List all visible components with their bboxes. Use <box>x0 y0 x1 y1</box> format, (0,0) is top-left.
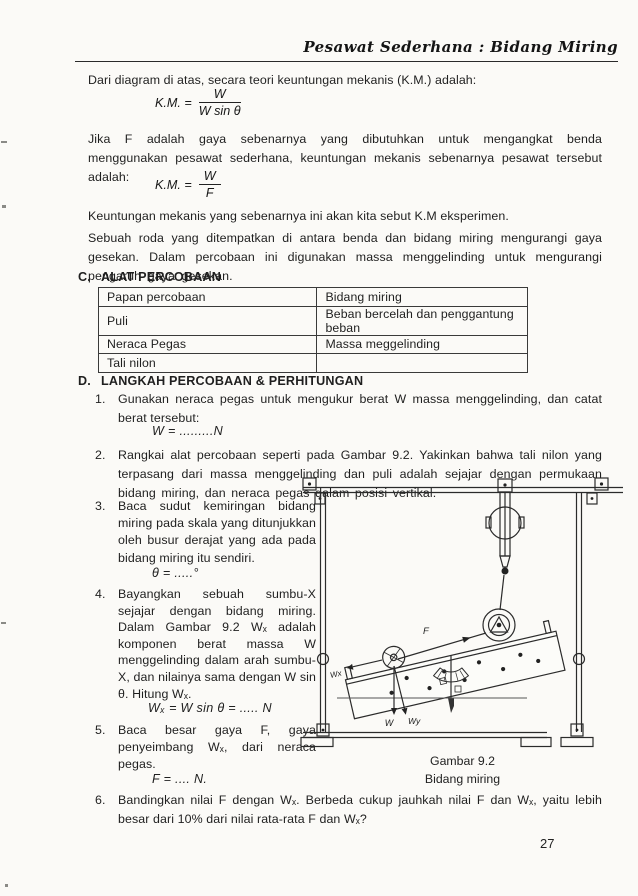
step-6: 6. Bandingkan nilai F dengan Wₓ. Berbeda… <box>95 791 602 829</box>
table-cell: Tali nilon <box>99 354 317 373</box>
section-d-label: D. <box>78 374 101 388</box>
header-rule <box>75 61 618 62</box>
table-cell <box>317 354 528 373</box>
apparatus-frame <box>301 478 623 747</box>
table-cell: Massa meggelinding <box>317 335 528 354</box>
page-number: 27 <box>540 836 554 851</box>
table-row: Tali nilon <box>99 354 528 373</box>
spring-balance <box>486 479 524 575</box>
formula-km-theory: K.M. = W W sin θ <box>155 87 241 118</box>
step-4: 4. Bayangkan sebuah sumbu-X sejajar deng… <box>95 586 316 702</box>
fraction-denominator: F <box>199 185 221 200</box>
scan-speck <box>2 205 6 208</box>
alat-percobaan-table: Papan percobaan Bidang miring Puli Beban… <box>98 287 528 373</box>
step-1: 1. Gunakan neraca pegas untuk mengukur b… <box>95 390 602 428</box>
table-row: Puli Beban bercelah dan penggantung beba… <box>99 306 528 335</box>
figure-gambar-9-2: Wx <box>295 474 630 750</box>
paragraph-km-experiment: Keuntungan mekanis yang sebenarnya ini a… <box>88 207 602 226</box>
force-f-arrow <box>462 637 471 643</box>
step-5-formula: F = .... N. <box>152 772 207 786</box>
step-text: Bayangkan sebuah sumbu-X sejajar dengan … <box>118 586 316 702</box>
step-text: Baca sudut kemiringan bidang miring pada… <box>118 498 316 567</box>
figure-caption-number: Gambar 9.2 <box>295 752 630 770</box>
step-3-formula: θ = .....° <box>152 566 199 580</box>
force-w-label: W <box>385 718 395 728</box>
force-f-label: F <box>423 626 430 637</box>
table-cell: Puli <box>99 306 317 335</box>
formula-lhs: K.M. = <box>155 178 192 192</box>
section-d-heading: D. LANGKAH PERCOBAAN & PERHITUNGAN <box>78 374 363 388</box>
fraction: W F <box>199 169 221 200</box>
scan-speck <box>1 141 7 143</box>
step-text: Bandingkan nilai F dengan Wₓ. Berbeda cu… <box>118 791 602 829</box>
table-cell: Beban bercelah dan penggantung beban <box>317 306 528 335</box>
force-wy-label: Wy <box>408 716 421 726</box>
table-row: Papan percobaan Bidang miring <box>99 288 528 307</box>
force-wx-label: Wx <box>329 668 343 680</box>
step-number: 4. <box>95 586 118 702</box>
step-number: 6. <box>95 791 118 829</box>
pulley <box>483 609 515 641</box>
section-c-title: ALAT PERCOBAAN <box>101 270 221 284</box>
table-cell: Bidang miring <box>317 288 528 307</box>
fraction-denominator: W sin θ <box>199 103 241 118</box>
fraction-numerator: W <box>199 87 241 103</box>
section-c-label: C. <box>78 270 101 284</box>
right-adjuster-knob <box>574 654 585 665</box>
nylon-string-vertical <box>500 575 504 610</box>
section-d-title: LANGKAH PERCOBAAN & PERHITUNGAN <box>101 374 363 388</box>
scan-speck <box>1 622 6 624</box>
table-cell: Papan percobaan <box>99 288 317 307</box>
step-number: 1. <box>95 390 118 428</box>
step-number: 2. <box>95 446 118 503</box>
step-3: 3. Baca sudut kemiringan bidang miring p… <box>95 498 316 567</box>
fraction-numerator: W <box>199 169 221 185</box>
figure-caption: Gambar 9.2 Bidang miring <box>295 752 630 788</box>
step-1-formula: W = .........N <box>152 424 223 438</box>
step-number: 5. <box>95 722 118 774</box>
step-4-formula: Wₓ = W sin θ = ..... N <box>148 701 272 715</box>
table-cell: Neraca Pegas <box>99 335 317 354</box>
running-header-title: Pesawat Sederhana : Bidang Miring <box>303 38 618 56</box>
scan-speck <box>5 884 8 887</box>
left-adjuster-knob <box>318 654 329 665</box>
step-text: Baca besar gaya F, gaya penyeimbang Wₓ, … <box>118 722 316 774</box>
formula-lhs: K.M. = <box>155 96 192 110</box>
table-row: Neraca Pegas Massa meggelinding <box>99 335 528 354</box>
step-number: 3. <box>95 498 118 567</box>
formula-km-actual: K.M. = W F <box>155 169 221 200</box>
fraction: W W sin θ <box>199 87 241 118</box>
scanned-document-page: Pesawat Sederhana : Bidang Miring Dari d… <box>0 0 638 896</box>
section-c-heading: C. ALAT PERCOBAAN <box>78 270 221 284</box>
inclined-board: Wx <box>327 610 565 722</box>
figure-caption-title: Bidang miring <box>295 770 630 788</box>
step-5: 5. Baca besar gaya F, gaya penyeimbang W… <box>95 722 316 774</box>
force-wx-arrow <box>346 657 382 671</box>
step-text: Gunakan neraca pegas untuk mengukur bera… <box>118 390 602 428</box>
